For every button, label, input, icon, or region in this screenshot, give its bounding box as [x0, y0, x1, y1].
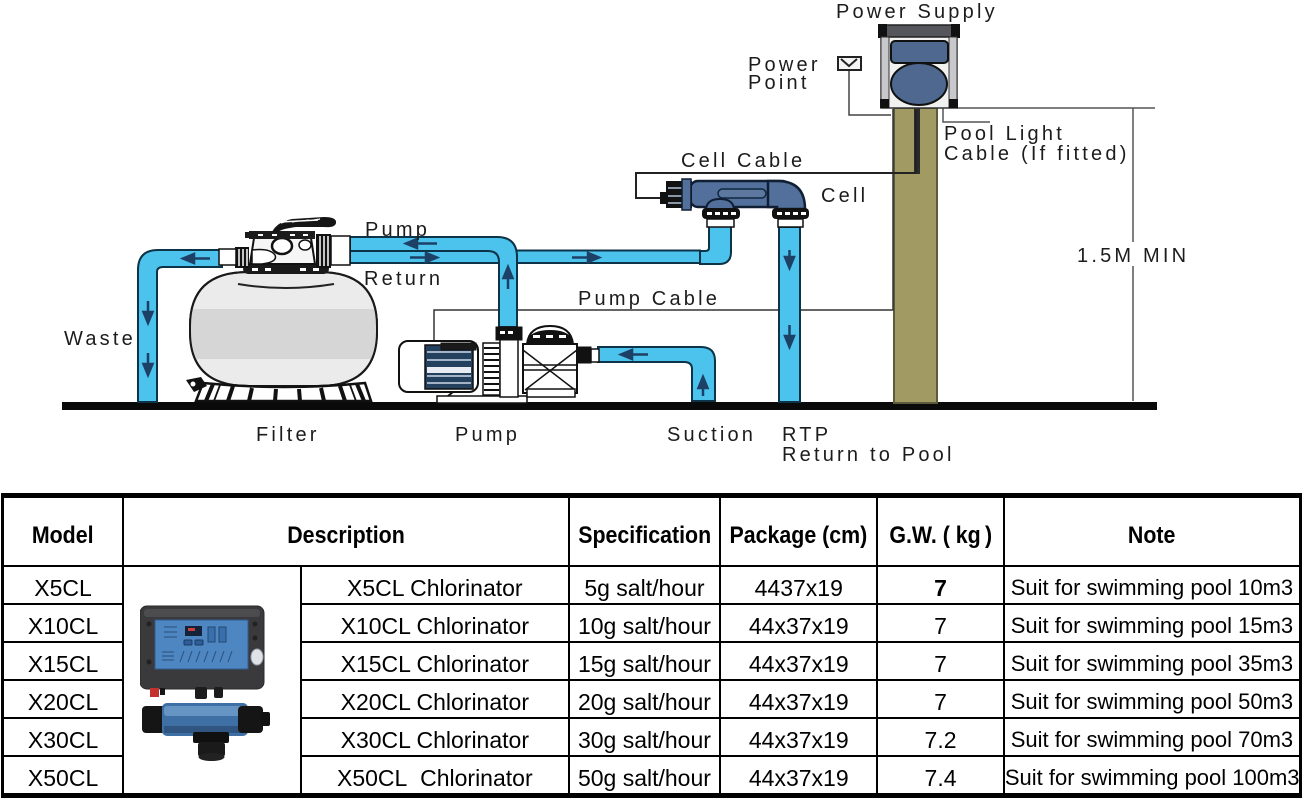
svg-text:Pump: Pump — [455, 424, 520, 446]
svg-text:Waste: Waste — [64, 328, 136, 350]
svg-text:Cell Cable: Cell Cable — [681, 150, 805, 172]
svg-text:Cell: Cell — [821, 185, 868, 207]
svg-text:Return: Return — [364, 268, 443, 290]
svg-text:1.5M MIN: 1.5M MIN — [1077, 245, 1189, 267]
svg-text:Filter: Filter — [256, 424, 320, 446]
svg-text:Pump: Pump — [365, 219, 430, 241]
svg-text:Power Supply: Power Supply — [836, 1, 998, 23]
svg-text:Cable (If fitted): Cable (If fitted) — [944, 143, 1130, 165]
svg-text:RTP: RTP — [782, 424, 831, 446]
svg-text:Return to Pool: Return to Pool — [782, 444, 955, 466]
svg-text:Suction: Suction — [667, 424, 756, 446]
svg-text:Pool Light: Pool Light — [944, 123, 1065, 145]
svg-text:Pump Cable: Pump Cable — [578, 288, 720, 310]
svg-text:Point: Point — [748, 72, 810, 94]
